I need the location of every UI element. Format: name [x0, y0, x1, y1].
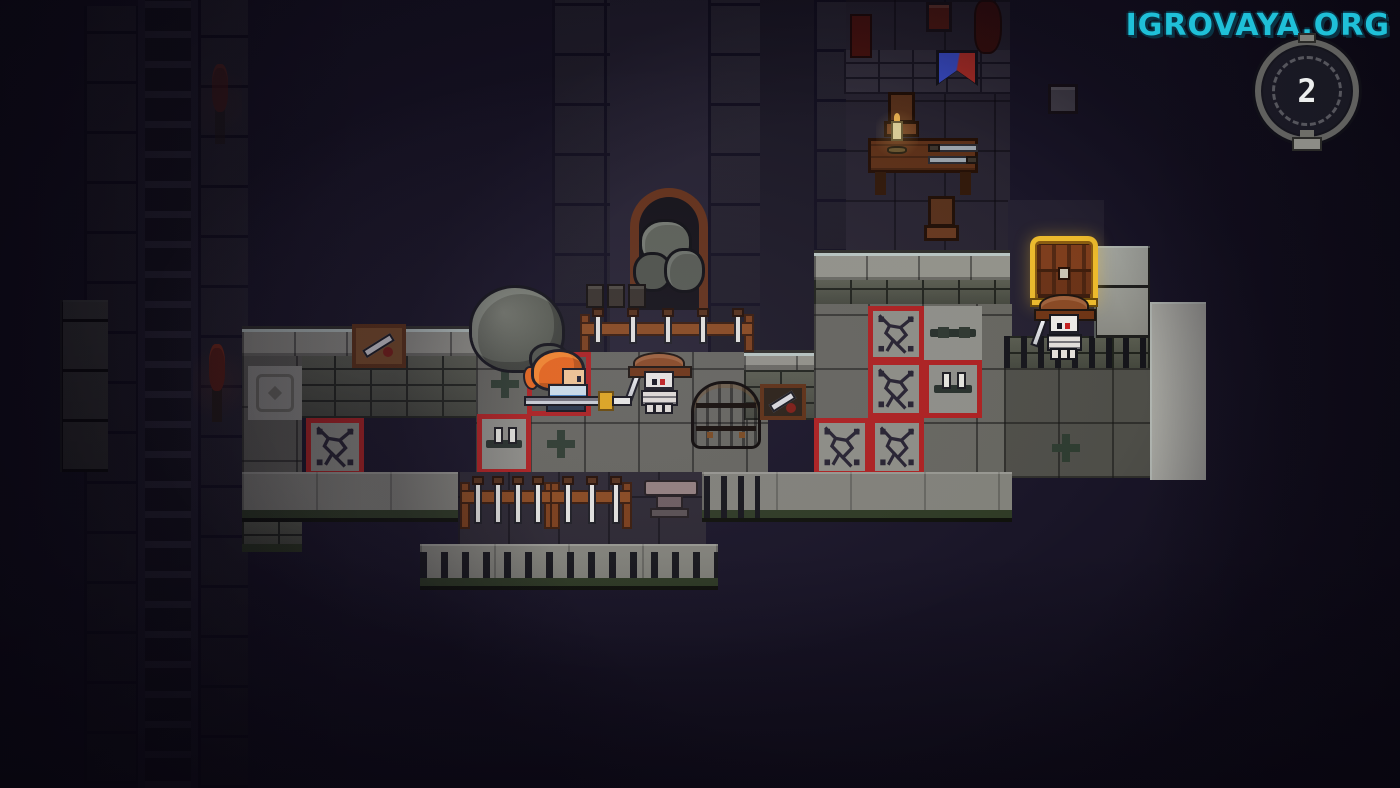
room-wall-left [814, 0, 846, 252]
skeleton-eye [652, 379, 657, 385]
barrel-rivet [707, 432, 713, 438]
skeleton-ribs [1049, 336, 1080, 349]
spike-trap-tile-1 [477, 414, 531, 474]
player-sword-icon [524, 396, 602, 406]
table-leg [960, 172, 971, 195]
spike-icon [957, 372, 966, 389]
wall-fence-posts [420, 552, 718, 578]
skeleton-legs [647, 405, 671, 412]
spike-trap-tile-3 [924, 360, 982, 418]
chair-bottom [924, 196, 962, 248]
crack-pattern-icon [873, 365, 919, 413]
red-box [926, 2, 952, 32]
knife-handle [966, 156, 978, 164]
blade-handle [592, 308, 604, 317]
barrel [694, 384, 758, 446]
crate [607, 284, 625, 308]
knife-handle [928, 144, 940, 152]
skeleton-skull [646, 373, 672, 388]
barrel-rivet [739, 432, 745, 438]
spike-icon [508, 427, 517, 444]
player-eye [577, 376, 581, 382]
grey-box [1048, 84, 1078, 114]
table-knives [928, 142, 978, 168]
rack-post [550, 482, 560, 529]
spike-slot [938, 327, 949, 338]
trap-tile-4 [870, 418, 924, 476]
rack-post [460, 482, 470, 529]
crack-pattern-icon [873, 311, 919, 357]
lower-fence [704, 476, 760, 518]
crate [628, 284, 646, 308]
upper-ledge-bricks [814, 280, 1010, 306]
rack-post [622, 482, 632, 529]
pressure-plate-3 [1038, 420, 1094, 476]
left-torch [205, 344, 229, 422]
right-wall-blocks-b [1150, 302, 1206, 480]
torch-flame [209, 344, 225, 391]
weapon-rack-low-1 [462, 478, 552, 540]
divider-wall [760, 0, 816, 352]
skeleton-enemy-1 [630, 352, 690, 414]
chair-seat [924, 225, 959, 242]
anvil-top [644, 480, 698, 496]
spike-icon [942, 372, 951, 389]
skeleton-enemy-2 [1036, 294, 1094, 360]
candle-stick [891, 121, 903, 141]
shield-boss [383, 347, 393, 357]
barrel-band [696, 426, 756, 431]
blade-handle [562, 476, 574, 485]
blade-handle [532, 476, 544, 485]
anvil-base [650, 508, 689, 518]
skeleton-red-eye [660, 379, 665, 385]
plate-cross-icon [1062, 434, 1070, 462]
hanging-blade-icon [474, 480, 482, 524]
hanging-blade-icon [564, 480, 572, 524]
round-timer: 2 [1252, 36, 1362, 146]
rubble-stone [667, 251, 701, 290]
spike-bar [934, 385, 972, 393]
hatch-tile [248, 366, 302, 420]
skeleton-ribs [643, 392, 675, 404]
wall-shield-a [352, 324, 406, 368]
hanging-blade-icon [494, 480, 502, 524]
trap-tile-3 [814, 418, 870, 476]
skeleton-skull [1051, 316, 1077, 332]
trap-tile-1 [868, 306, 924, 362]
crate [586, 284, 604, 308]
crack-pattern-icon [875, 423, 919, 471]
game-viewport[interactable]: IGROVAYA.ORG 2 [0, 0, 1400, 788]
spike-slot [959, 327, 970, 338]
right-wall-blocks-a [1094, 246, 1150, 338]
hanging-blade-icon [612, 480, 620, 524]
blade-handle [697, 308, 709, 317]
chair-back [928, 196, 955, 227]
corridor-wall-right [708, 0, 762, 356]
anvil-body [656, 495, 683, 509]
wall-banner-red [850, 14, 872, 58]
torch-bracket [212, 387, 222, 422]
plate-cross-icon [557, 430, 565, 458]
trap-tile-isolated [306, 418, 364, 476]
blade-handle [610, 476, 622, 485]
candle [886, 112, 908, 156]
torch-flame [212, 64, 228, 112]
skeleton-eye [1057, 323, 1062, 329]
candle-holder [887, 146, 907, 154]
trap-tile-2 [868, 360, 924, 418]
wall-plant [974, 0, 1002, 54]
spike-trap-tile-2 [924, 306, 982, 360]
crack-pattern-icon [819, 423, 865, 471]
hanging-blade-icon [514, 480, 522, 524]
hanging-blade-icon [534, 480, 542, 524]
small-crates [586, 284, 648, 308]
crack-pattern-icon [311, 423, 359, 471]
blade-handle [472, 476, 484, 485]
shield-boss [786, 403, 796, 413]
lower-wall-left [242, 472, 464, 522]
lower-room-wall [420, 544, 718, 590]
left-ladder [138, 0, 198, 788]
weapon-rack-low-2 [552, 478, 630, 540]
torch-bracket [215, 108, 225, 144]
chest-latch [1058, 267, 1070, 280]
timer-value: 2 [1252, 36, 1362, 146]
sword-grip [612, 396, 632, 406]
skeleton-red-eye [1065, 323, 1070, 329]
spike-icon [494, 427, 503, 444]
skeleton-legs [1052, 350, 1075, 358]
wall-shield-b [760, 384, 806, 420]
upper-ledge-cap [814, 250, 1010, 282]
left-wall-lit [60, 300, 108, 472]
table-leg [875, 172, 886, 195]
blade-handle [662, 308, 674, 317]
blade-handle [732, 308, 744, 317]
player [524, 350, 636, 416]
blade-handle [586, 476, 598, 485]
plate-cross-icon [501, 370, 509, 398]
barrel-band [696, 403, 756, 408]
anvil [644, 476, 698, 524]
pressure-plate-2 [532, 414, 590, 474]
hanging-blade-icon [588, 480, 596, 524]
left-torch-top [210, 64, 230, 144]
blade-handle [512, 476, 524, 485]
blade-handle [492, 476, 504, 485]
blade-handle [627, 308, 639, 317]
